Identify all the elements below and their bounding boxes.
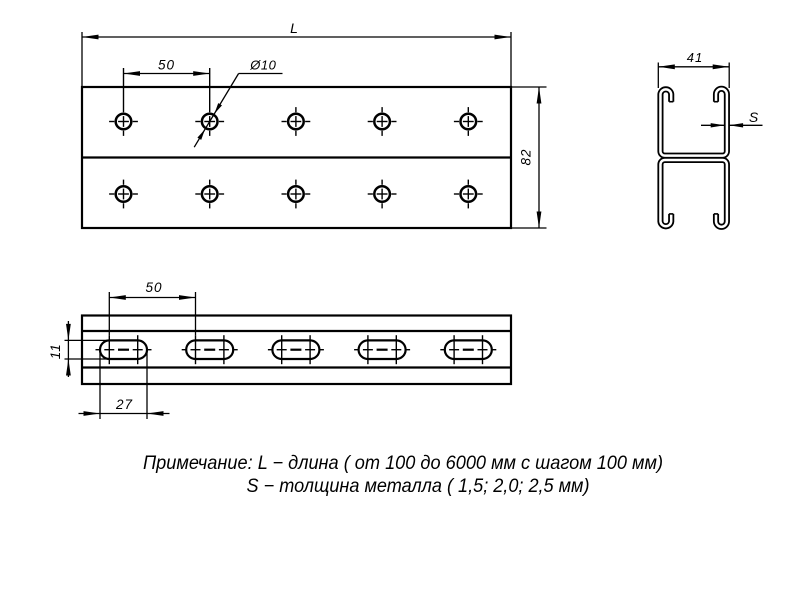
- svg-text:41: 41: [687, 50, 703, 65]
- svg-text:S: S: [749, 109, 759, 125]
- svg-text:11: 11: [48, 343, 63, 359]
- svg-text:82: 82: [519, 148, 534, 165]
- svg-text:50: 50: [158, 58, 175, 73]
- svg-text:Ø10: Ø10: [249, 58, 276, 73]
- svg-text:50: 50: [145, 280, 162, 295]
- svg-text:L: L: [290, 20, 298, 36]
- svg-text:S − толщина металла ( 1,5; 2,0: S − толщина металла ( 1,5; 2,0; 2,5 мм): [247, 476, 590, 497]
- svg-text:Примечание: L − длина ( от 100: Примечание: L − длина ( от 100 до 6000 м…: [143, 453, 663, 474]
- svg-text:27: 27: [115, 397, 133, 412]
